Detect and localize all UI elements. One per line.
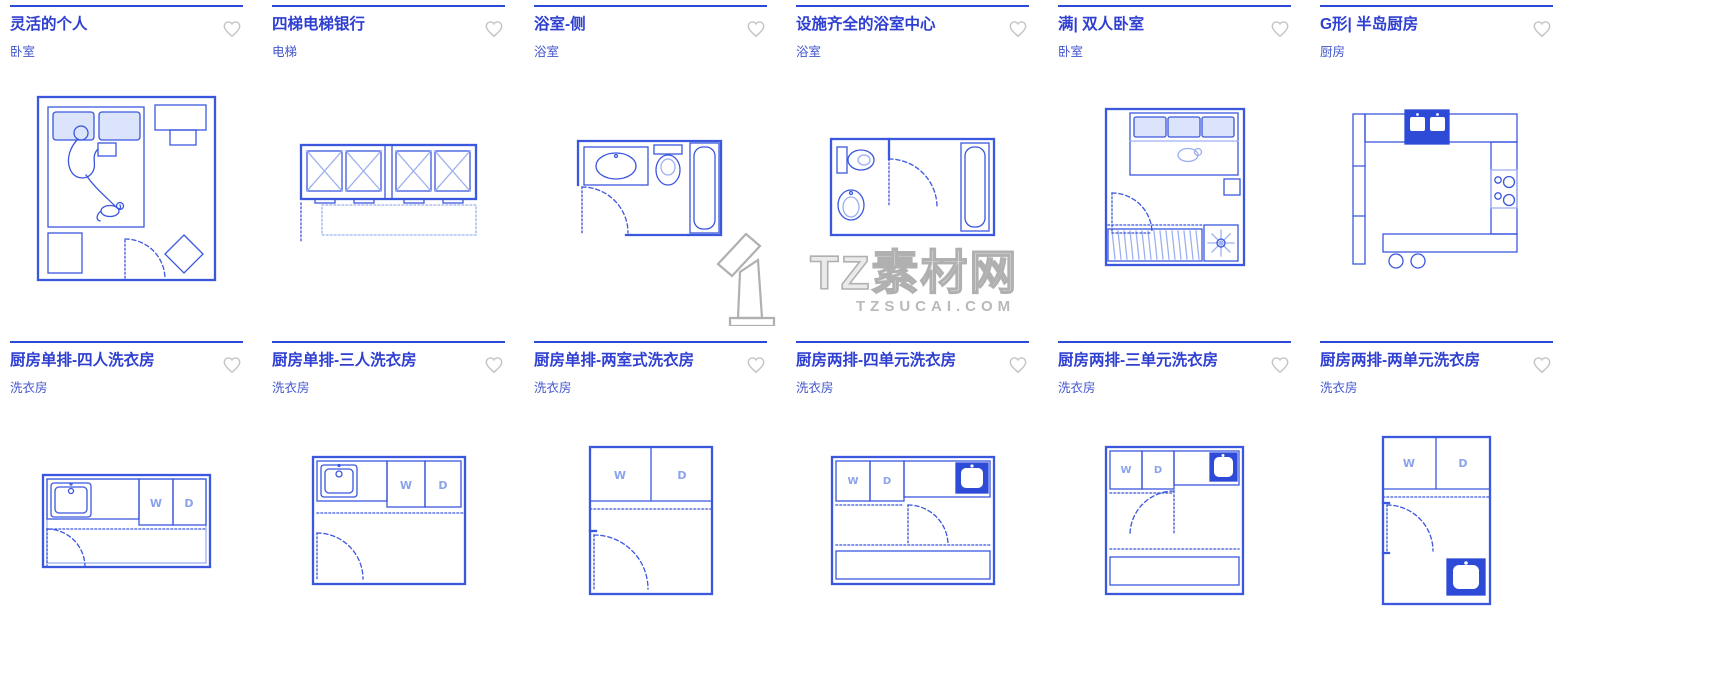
asset-card-laundry-double-4[interactable]: 厨房两排-四单元洗衣房 洗衣房 W D [796, 341, 1029, 675]
asset-grid: 灵活的个人 卧室 [0, 0, 1730, 675]
svg-text:D: D [882, 476, 890, 487]
asset-title[interactable]: 厨房单排-三人洗衣房 [272, 352, 417, 371]
floorplan-thumbnail[interactable]: W D [1320, 406, 1553, 636]
svg-text:W: W [1403, 457, 1415, 470]
asset-card-g-peninsula-kitchen[interactable]: G形| 半岛厨房 厨房 [1320, 5, 1553, 341]
asset-title[interactable]: 满| 双人卧室 [1058, 16, 1144, 35]
asset-title[interactable]: 设施齐全的浴室中心 [796, 16, 936, 35]
asset-category[interactable]: 浴室 [796, 41, 936, 60]
favorite-heart-icon[interactable] [1269, 354, 1291, 374]
asset-card-laundry-double-2[interactable]: 厨房两排-两单元洗衣房 洗衣房 W D [1320, 341, 1553, 675]
asset-category[interactable]: 洗衣房 [10, 377, 155, 396]
asset-card-elevator-bank[interactable]: 四梯电梯银行 电梯 [272, 5, 505, 341]
asset-category[interactable]: 卧室 [1058, 41, 1144, 60]
asset-category[interactable]: 洗衣房 [1320, 377, 1480, 396]
asset-card-bathroom-side[interactable]: 浴室-侧 浴室 [534, 5, 767, 341]
laundry-single4-drawing: W D [39, 471, 214, 571]
floorplan-thumbnail[interactable]: W D [272, 406, 505, 636]
bathroom-center-drawing [825, 129, 1000, 244]
asset-title[interactable]: 厨房单排-两室式洗衣房 [534, 352, 694, 371]
elevator-bank-drawing [296, 129, 481, 244]
favorite-heart-icon[interactable] [1007, 18, 1029, 38]
laundry-double2-drawing: W D [1379, 433, 1494, 608]
svg-text:W: W [1120, 465, 1131, 476]
floorplan-thumbnail[interactable] [796, 74, 1029, 299]
asset-card-laundry-single-3[interactable]: 厨房单排-三人洗衣房 洗衣房 W D [272, 341, 505, 675]
favorite-heart-icon[interactable] [1531, 354, 1553, 374]
asset-category[interactable]: 洗衣房 [796, 377, 956, 396]
asset-card-laundry-double-3[interactable]: 厨房两排-三单元洗衣房 洗衣房 W D [1058, 341, 1291, 675]
asset-category[interactable]: 厨房 [1320, 41, 1418, 60]
laundry-single3-drawing: W D [309, 453, 469, 588]
favorite-heart-icon[interactable] [745, 354, 767, 374]
svg-text:W: W [399, 479, 411, 492]
svg-text:W: W [613, 469, 625, 482]
asset-title[interactable]: 厨房单排-四人洗衣房 [10, 352, 155, 371]
asset-category[interactable]: 浴室 [534, 41, 586, 60]
favorite-heart-icon[interactable] [1531, 18, 1553, 38]
asset-category[interactable]: 卧室 [10, 41, 88, 60]
asset-title[interactable]: G形| 半岛厨房 [1320, 16, 1418, 35]
floorplan-thumbnail[interactable] [1058, 74, 1291, 299]
asset-title[interactable]: 厨房两排-两单元洗衣房 [1320, 352, 1480, 371]
floorplan-thumbnail[interactable]: W D [796, 406, 1029, 636]
svg-text:D: D [1154, 465, 1162, 476]
asset-card-bathroom-center[interactable]: 设施齐全的浴室中心 浴室 [796, 5, 1029, 341]
asset-category[interactable]: 洗衣房 [272, 377, 417, 396]
favorite-heart-icon[interactable] [1007, 354, 1029, 374]
favorite-heart-icon[interactable] [483, 354, 505, 374]
favorite-heart-icon[interactable] [221, 18, 243, 38]
floorplan-thumbnail[interactable] [534, 74, 767, 299]
bathroom-side-drawing [568, 129, 733, 244]
asset-card-laundry-single-2room[interactable]: 厨房单排-两室式洗衣房 洗衣房 W D [534, 341, 767, 675]
floorplan-thumbnail[interactable]: W D [1058, 406, 1291, 636]
favorite-heart-icon[interactable] [221, 354, 243, 374]
laundry-tworoom-drawing: W D [586, 443, 716, 598]
asset-card-flexible-individual[interactable]: 灵活的个人 卧室 [10, 5, 243, 341]
asset-card-laundry-single-4[interactable]: 厨房单排-四人洗衣房 洗衣房 W D [10, 341, 243, 675]
floorplan-thumbnail[interactable]: W D [534, 406, 767, 636]
asset-title[interactable]: 四梯电梯银行 [272, 16, 365, 35]
asset-title[interactable]: 厨房两排-四单元洗衣房 [796, 352, 956, 371]
laundry-double4-drawing: W D [828, 453, 998, 588]
asset-card-double-bedroom[interactable]: 满| 双人卧室 卧室 [1058, 5, 1291, 341]
asset-title[interactable]: 厨房两排-三单元洗衣房 [1058, 352, 1218, 371]
double-bedroom-drawing [1100, 101, 1250, 271]
asset-category[interactable]: 洗衣房 [1058, 377, 1218, 396]
floorplan-thumbnail[interactable] [10, 74, 243, 299]
svg-text:D: D [1458, 457, 1467, 470]
floorplan-thumbnail[interactable] [272, 74, 505, 299]
svg-text:W: W [150, 497, 162, 510]
svg-text:D: D [677, 469, 686, 482]
favorite-heart-icon[interactable] [1269, 18, 1291, 38]
floorplan-thumbnail[interactable]: W D [10, 406, 243, 636]
asset-category[interactable]: 电梯 [272, 41, 365, 60]
g-kitchen-drawing [1349, 104, 1524, 269]
laundry-double3-drawing: W D [1102, 443, 1247, 598]
asset-title[interactable]: 灵活的个人 [10, 16, 88, 35]
bedroom-plan-drawing [34, 89, 219, 284]
svg-text:W: W [847, 476, 858, 487]
favorite-heart-icon[interactable] [745, 18, 767, 38]
asset-category[interactable]: 洗衣房 [534, 377, 694, 396]
asset-title[interactable]: 浴室-侧 [534, 16, 586, 35]
floorplan-thumbnail[interactable] [1320, 74, 1553, 299]
svg-text:D: D [438, 479, 447, 492]
svg-text:D: D [184, 497, 193, 510]
favorite-heart-icon[interactable] [483, 18, 505, 38]
